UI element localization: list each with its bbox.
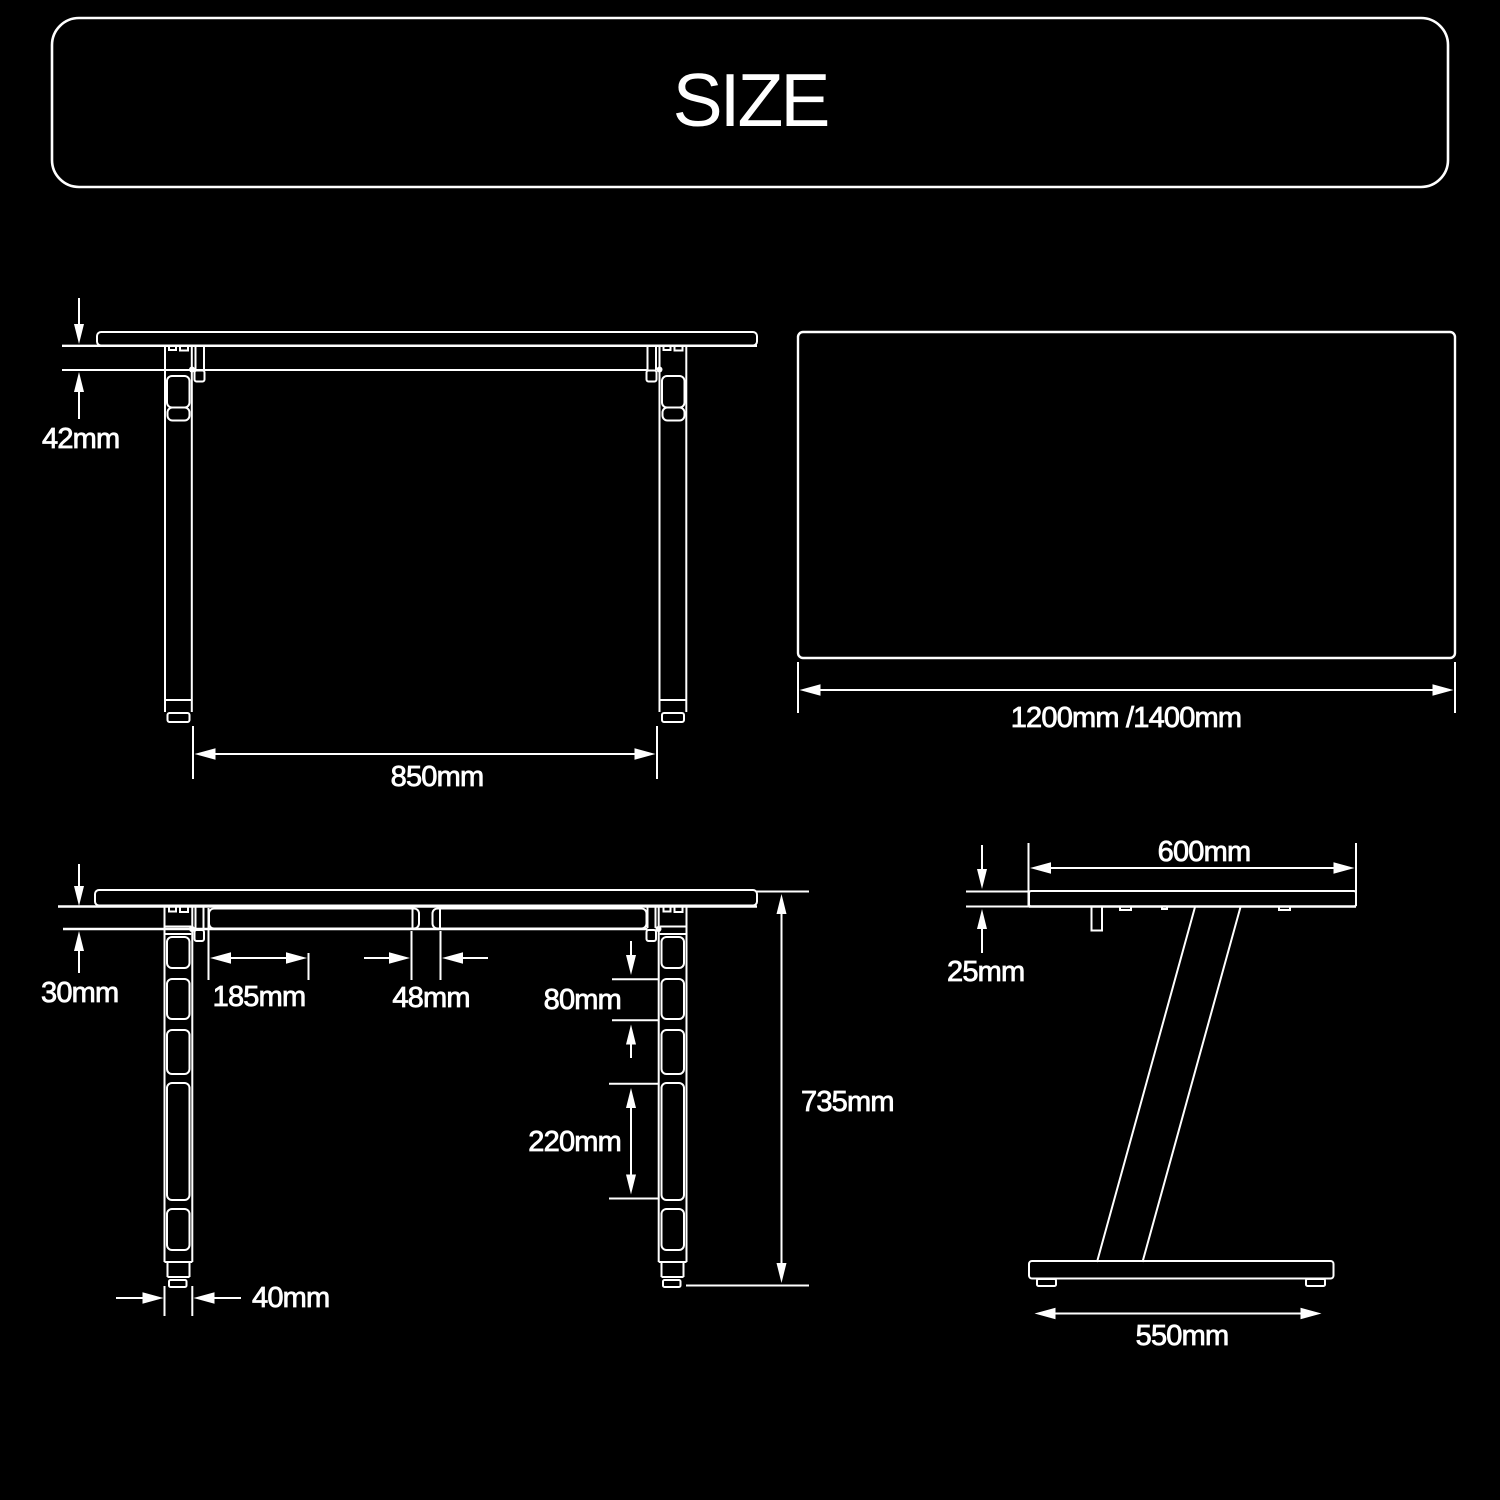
svg-text:48mm: 48mm [392, 982, 469, 1014]
svg-text:25mm: 25mm [947, 956, 1024, 988]
svg-text:550mm: 550mm [1136, 1320, 1229, 1352]
svg-text:42mm: 42mm [42, 423, 119, 455]
svg-text:30mm: 30mm [41, 977, 118, 1009]
svg-text:80mm: 80mm [544, 984, 621, 1016]
svg-text:600mm: 600mm [1158, 836, 1251, 868]
svg-text:SIZE: SIZE [673, 58, 828, 142]
svg-text:735mm: 735mm [801, 1086, 894, 1118]
svg-text:185mm: 185mm [213, 981, 306, 1013]
svg-text:40mm: 40mm [252, 1282, 329, 1314]
svg-text:220mm: 220mm [528, 1126, 621, 1158]
svg-text:1200mm /1400mm: 1200mm /1400mm [1011, 702, 1242, 734]
svg-text:850mm: 850mm [391, 761, 484, 793]
